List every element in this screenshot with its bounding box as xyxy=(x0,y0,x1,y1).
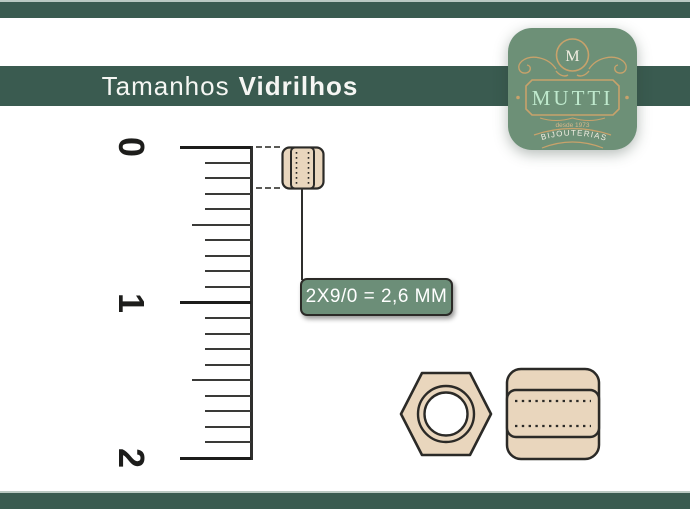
dimension-dash-bottom xyxy=(256,187,280,189)
size-label-badge: 2X9/0 = 2,6 MM xyxy=(300,278,453,316)
page-title-bold: Vidrilhos xyxy=(239,71,359,102)
ruler-tick-minor xyxy=(205,333,251,335)
brand-logo: M MUTTI desde 1973 BIJOUTERIAS xyxy=(508,28,637,150)
page-title-light: Tamanhos xyxy=(102,71,230,102)
bottom-bar xyxy=(0,493,690,509)
ruler-tick-minor xyxy=(205,410,251,412)
ruler-tick-minor xyxy=(205,348,251,350)
ruler-number-2: 2 xyxy=(111,438,151,478)
page-title: Tamanhos Vidrilhos xyxy=(0,66,460,106)
ruler-tick-mid xyxy=(192,224,251,226)
ruler-number-0: 0 xyxy=(111,127,151,167)
ruler-tick-major xyxy=(180,146,251,149)
dimension-dash-top xyxy=(256,146,280,148)
bugle-bead-small-icon xyxy=(281,146,325,195)
ruler-number-1: 1 xyxy=(111,283,151,323)
ruler-tick-mid xyxy=(192,379,251,381)
ruler-tick-minor xyxy=(205,208,251,210)
cylinder-bead-side-icon xyxy=(505,366,601,467)
ruler-tick-minor xyxy=(205,317,251,319)
top-bar xyxy=(0,2,690,18)
leader-line xyxy=(301,188,303,280)
hexagon-bead-front-icon xyxy=(398,369,494,464)
ruler-tick-minor xyxy=(205,426,251,428)
ruler-tick-major xyxy=(180,301,251,304)
ruler-tick-minor xyxy=(205,239,251,241)
ruler-tick-major xyxy=(180,457,251,460)
banner-arc-bottom-icon xyxy=(542,142,603,148)
brand-logo-art: M MUTTI desde 1973 BIJOUTERIAS xyxy=(508,28,637,150)
ruler-tick-minor xyxy=(205,255,251,257)
ruler-tick-minor xyxy=(205,193,251,195)
ruler-tick-minor xyxy=(205,395,251,397)
infographic-canvas: Tamanhos Vidrilhos M MUTTI desde 1973 xyxy=(0,0,690,509)
ruler-tick-minor xyxy=(205,441,251,443)
brand-name: MUTTI xyxy=(532,86,614,110)
ruler-tick-minor xyxy=(205,177,251,179)
logo-monogram: M xyxy=(565,48,579,65)
frame-dot-right-icon xyxy=(625,96,629,100)
ruler-tick-minor xyxy=(205,364,251,366)
frame-dot-left-icon xyxy=(516,96,520,100)
ruler-tick-minor xyxy=(205,270,251,272)
size-label-text: 2X9/0 = 2,6 MM xyxy=(306,286,448,308)
ruler-tick-minor xyxy=(205,162,251,164)
bracket-ornament-icon xyxy=(540,118,605,121)
ruler-tick-minor xyxy=(205,286,251,288)
